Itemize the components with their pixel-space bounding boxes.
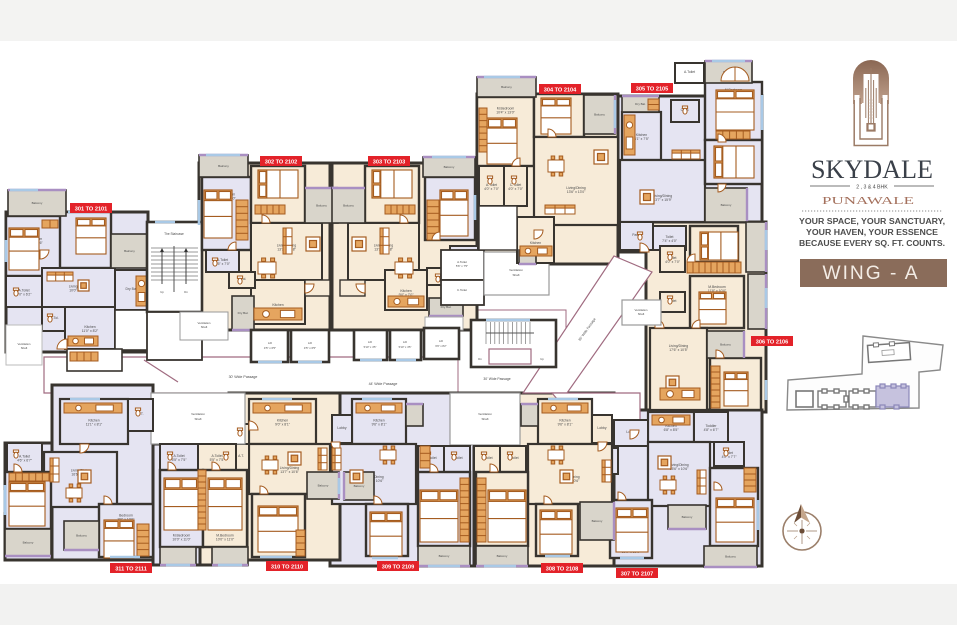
svg-text:30' Wide Passage: 30' Wide Passage bbox=[229, 375, 258, 379]
svg-text:Balcony: Balcony bbox=[439, 554, 450, 558]
svg-text:YOUR SPACE, YOUR SANCTUARY,: YOUR SPACE, YOUR SANCTUARY, bbox=[799, 217, 945, 226]
svg-text:Balcony: Balcony bbox=[218, 164, 229, 168]
svg-text:Balcony: Balcony bbox=[32, 201, 43, 205]
svg-text:Dry Bal.: Dry Bal. bbox=[238, 311, 249, 315]
svg-text:Lift: Lift bbox=[268, 341, 272, 345]
svg-text:30' Wide Passage: 30' Wide Passage bbox=[483, 377, 510, 381]
svg-text:308 TO 2108: 308 TO 2108 bbox=[546, 566, 579, 572]
svg-text:301 TO 2101: 301 TO 2101 bbox=[75, 206, 108, 212]
svg-text:4'0" x 7'0": 4'0" x 7'0" bbox=[484, 187, 500, 191]
svg-text:5'10" x 4'5": 5'10" x 4'5" bbox=[399, 345, 412, 349]
svg-text:4'0" x 7'0": 4'0" x 7'0" bbox=[508, 187, 524, 191]
svg-text:307 TO 2107: 307 TO 2107 bbox=[621, 571, 654, 577]
svg-text:10'0" x 11'0": 10'0" x 11'0" bbox=[172, 538, 191, 542]
svg-text:WING - A: WING - A bbox=[823, 263, 920, 284]
svg-text:Lobby: Lobby bbox=[597, 426, 607, 430]
svg-text:Up: Up bbox=[160, 290, 164, 294]
svg-text:9'0" x 8'1": 9'0" x 8'1" bbox=[275, 423, 291, 427]
svg-text:The Staircase: The Staircase bbox=[164, 232, 184, 236]
svg-text:15'6" x 10'6": 15'6" x 10'6" bbox=[670, 467, 689, 471]
svg-text:Dn: Dn bbox=[184, 290, 188, 294]
svg-text:13'7" x 15'9": 13'7" x 15'9" bbox=[653, 198, 672, 202]
svg-text:6'8" x 8'5": 6'8" x 8'5" bbox=[664, 428, 680, 432]
svg-text:Shaft: Shaft bbox=[638, 312, 645, 316]
svg-text:13'6" x 13'0": 13'6" x 13'0" bbox=[567, 190, 586, 194]
svg-text:9'6" x 8'1": 9'6" x 8'1" bbox=[372, 423, 388, 427]
svg-text:Balcony: Balcony bbox=[354, 484, 365, 488]
svg-text:4'5" x 6'5": 4'5" x 6'5" bbox=[264, 346, 276, 350]
svg-text:Ventilation: Ventilation bbox=[478, 412, 492, 416]
svg-text:11'1" x 8'1": 11'1" x 8'1" bbox=[86, 423, 103, 427]
svg-text:10'4" x 13'0": 10'4" x 13'0" bbox=[496, 111, 515, 115]
svg-text:Balcony: Balcony bbox=[501, 85, 512, 89]
svg-text:Balcony: Balcony bbox=[444, 165, 455, 169]
svg-text:Lift: Lift bbox=[439, 339, 443, 343]
svg-text:5'10" x 4'5": 5'10" x 4'5" bbox=[364, 345, 377, 349]
svg-text:Balcony: Balcony bbox=[720, 343, 731, 347]
svg-text:4'5" x 6'5": 4'5" x 6'5" bbox=[304, 346, 316, 350]
svg-text:311 TO 2111: 311 TO 2111 bbox=[115, 566, 147, 572]
svg-text:Dry Bal.: Dry Bal. bbox=[635, 102, 646, 106]
svg-text:A.Toilet: A.Toilet bbox=[684, 70, 695, 74]
svg-text:Balcony: Balcony bbox=[76, 534, 87, 538]
svg-text:13'7" x 10'6": 13'7" x 10'6" bbox=[280, 470, 299, 474]
svg-text:2 , 3 & 4 BHK: 2 , 3 & 4 BHK bbox=[856, 185, 888, 191]
svg-text:Balcony: Balcony bbox=[343, 204, 354, 208]
svg-text:303 TO 2103: 303 TO 2103 bbox=[373, 159, 406, 165]
svg-text:Up: Up bbox=[540, 357, 544, 361]
svg-text:C.Toilet: C.Toilet bbox=[457, 288, 467, 292]
svg-text:YOUR HAVEN, YOUR ESSENCE: YOUR HAVEN, YOUR ESSENCE bbox=[806, 228, 939, 237]
svg-text:Balcony: Balcony bbox=[725, 555, 736, 559]
svg-text:4'8" x 6'7": 4'8" x 6'7" bbox=[704, 428, 720, 432]
svg-text:7'4" x 4'0": 7'4" x 4'0" bbox=[662, 239, 678, 243]
svg-text:A.T.: A.T. bbox=[238, 454, 244, 458]
svg-text:Lobby: Lobby bbox=[337, 426, 347, 430]
svg-text:9'6" x 8'1": 9'6" x 8'1" bbox=[558, 423, 574, 427]
svg-text:Lift: Lift bbox=[403, 340, 407, 344]
svg-text:Shaft: Shaft bbox=[21, 346, 28, 350]
svg-text:Balcony: Balcony bbox=[682, 515, 693, 519]
svg-text:5'5" x 7'5": 5'5" x 7'5" bbox=[172, 458, 188, 462]
svg-text:305 TO 2105: 305 TO 2105 bbox=[636, 86, 669, 92]
svg-text:Ventilation: Ventilation bbox=[191, 412, 205, 416]
svg-text:Lift: Lift bbox=[308, 341, 312, 345]
svg-text:BECAUSE EVERY SQ. FT. COUNTS.: BECAUSE EVERY SQ. FT. COUNTS. bbox=[799, 239, 945, 248]
svg-text:4'0" x 7'0": 4'0" x 7'0" bbox=[665, 260, 681, 264]
svg-text:4'6" x 6'7": 4'6" x 6'7" bbox=[17, 459, 33, 463]
svg-text:Shaft: Shaft bbox=[512, 273, 519, 277]
svg-text:Ventilation: Ventilation bbox=[509, 268, 523, 272]
svg-text:Shaft: Shaft bbox=[194, 417, 201, 421]
svg-text:5'6" x 7'5": 5'6" x 7'5" bbox=[456, 264, 468, 268]
svg-text:11'0" x 8'2": 11'0" x 8'2" bbox=[82, 329, 99, 333]
svg-text:44' Wide Passage: 44' Wide Passage bbox=[369, 382, 398, 386]
svg-text:309 TO 2109: 309 TO 2109 bbox=[382, 564, 415, 570]
svg-text:Balcony: Balcony bbox=[721, 203, 732, 207]
svg-text:4'0" x 6'2": 4'0" x 6'2" bbox=[17, 293, 33, 297]
svg-text:10'0" x 11'0": 10'0" x 11'0" bbox=[216, 538, 235, 542]
svg-text:Lift: Lift bbox=[368, 340, 372, 344]
svg-text:310 TO 2110: 310 TO 2110 bbox=[271, 564, 303, 570]
svg-text:Shaft: Shaft bbox=[481, 417, 488, 421]
svg-text:Dn: Dn bbox=[478, 357, 482, 361]
svg-text:Balcony: Balcony bbox=[592, 519, 603, 523]
svg-text:Balcony: Balcony bbox=[124, 249, 135, 253]
svg-text:304 TO 2104: 304 TO 2104 bbox=[544, 87, 577, 93]
svg-text:PUNAWALE: PUNAWALE bbox=[822, 195, 914, 207]
svg-text:Balcony: Balcony bbox=[318, 484, 329, 488]
svg-text:Balcony: Balcony bbox=[594, 113, 605, 117]
svg-text:302 TO 2102: 302 TO 2102 bbox=[265, 159, 298, 165]
svg-text:SKYDALE: SKYDALE bbox=[811, 155, 933, 184]
svg-text:4'0" x 7'7": 4'0" x 7'7" bbox=[722, 455, 738, 459]
svg-text:306 TO 2106: 306 TO 2106 bbox=[756, 339, 789, 345]
svg-text:Balcony: Balcony bbox=[497, 554, 508, 558]
svg-text:Balcony: Balcony bbox=[23, 541, 34, 545]
svg-text:Balcony: Balcony bbox=[316, 204, 327, 208]
svg-text:17'6" x 10'5": 17'6" x 10'5" bbox=[669, 348, 688, 352]
svg-text:8'1" x 7'5": 8'1" x 7'5" bbox=[634, 137, 650, 141]
svg-text:6'9" x 8'2": 6'9" x 8'2" bbox=[435, 344, 446, 348]
svg-text:Shaft: Shaft bbox=[201, 325, 208, 329]
